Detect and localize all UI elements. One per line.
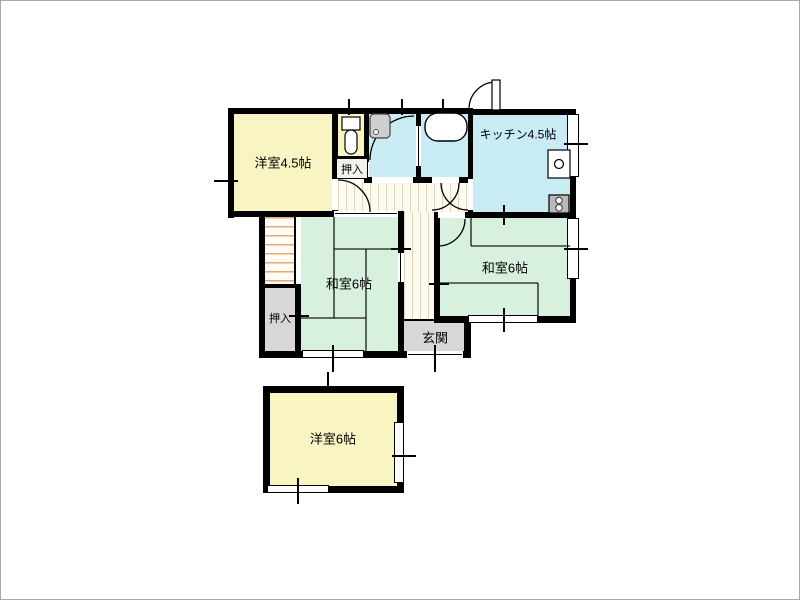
western-room-door-arc <box>338 180 370 212</box>
fixtures-overlay <box>1 1 800 600</box>
toilet-icon <box>342 117 360 154</box>
room-label-western-6: 洋室6帖 <box>310 429 356 448</box>
room-label-japanese-left: 和室6帖 <box>326 274 372 293</box>
washbasin-icon <box>370 114 390 138</box>
back-door-panel <box>492 80 500 110</box>
floorplan-canvas: 洋室4.5帖 キッチン4.5帖 和室6帖 和室6帖 玄関 洋室6帖 押入 押入 <box>0 0 800 600</box>
kitchen-door-arc <box>441 183 468 210</box>
room-label-closet-upper: 押入 <box>341 161 363 177</box>
stove-icon <box>549 195 569 213</box>
kitchen-sink-icon <box>548 150 570 178</box>
room-label-japanese-right: 和室6帖 <box>482 258 528 277</box>
room-label-entrance: 玄関 <box>422 328 448 347</box>
room-label-western-4-5: 洋室4.5帖 <box>254 153 311 172</box>
room-label-closet-left: 押入 <box>269 310 291 326</box>
bathtub-icon <box>425 113 467 141</box>
japanese-room-door-arc <box>438 219 465 246</box>
room-label-kitchen: キッチン4.5帖 <box>480 126 557 143</box>
bathroom-door-arc <box>432 183 459 210</box>
